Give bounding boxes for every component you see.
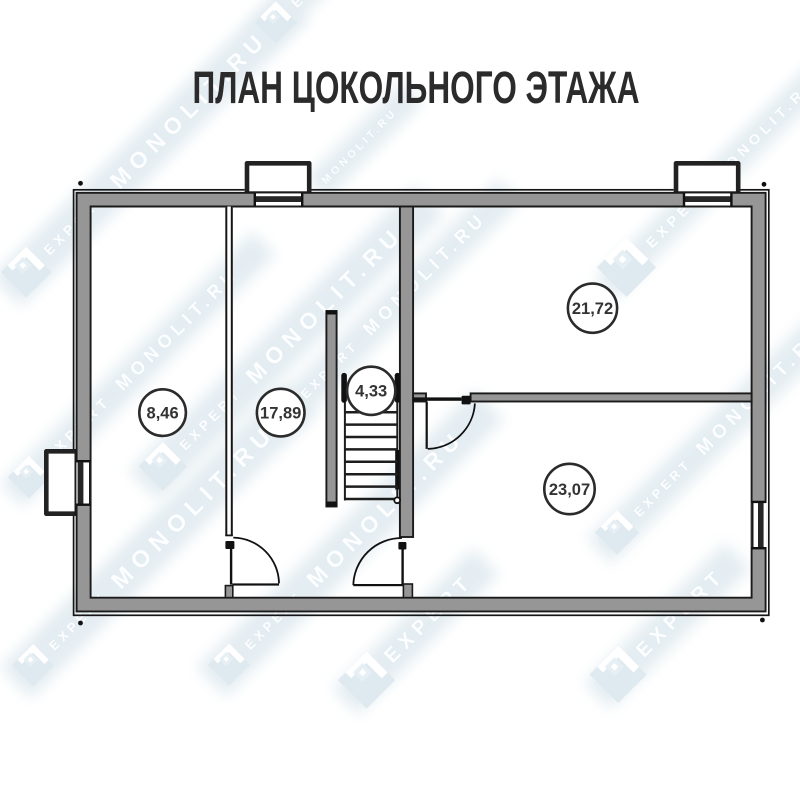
svg-text:EXPERT: EXPERT [632,564,730,662]
svg-text:4,33: 4,33 [355,383,387,401]
svg-text:8,46: 8,46 [147,404,179,422]
svg-text:23,07: 23,07 [549,481,590,499]
svg-text:MONOLIT.RU: MONOLIT.RU [320,106,400,186]
svg-text:21,72: 21,72 [572,300,613,318]
svg-text:17,89: 17,89 [260,404,301,422]
svg-text:MONOLIT.RU: MONOLIT.RU [112,263,244,395]
svg-text:ПЛАН ЦОКОЛЬНОГО ЭТАЖА: ПЛАН ЦОКОЛЬНОГО ЭТАЖА [193,62,640,113]
